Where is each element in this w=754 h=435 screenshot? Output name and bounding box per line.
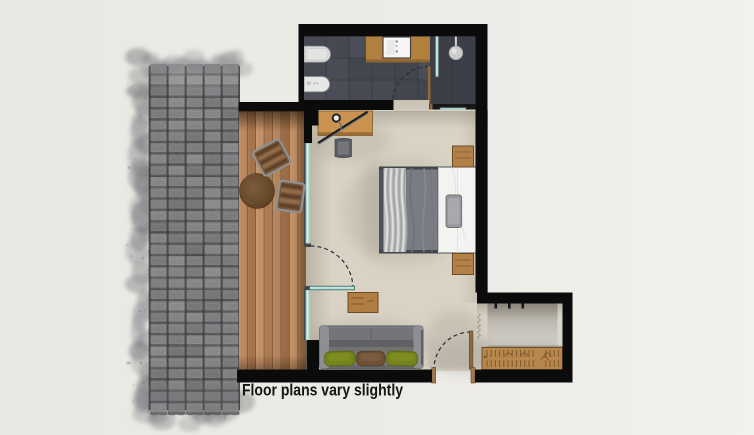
svg-text:Floor plans vary slightly: Floor plans vary slightly xyxy=(242,381,404,400)
